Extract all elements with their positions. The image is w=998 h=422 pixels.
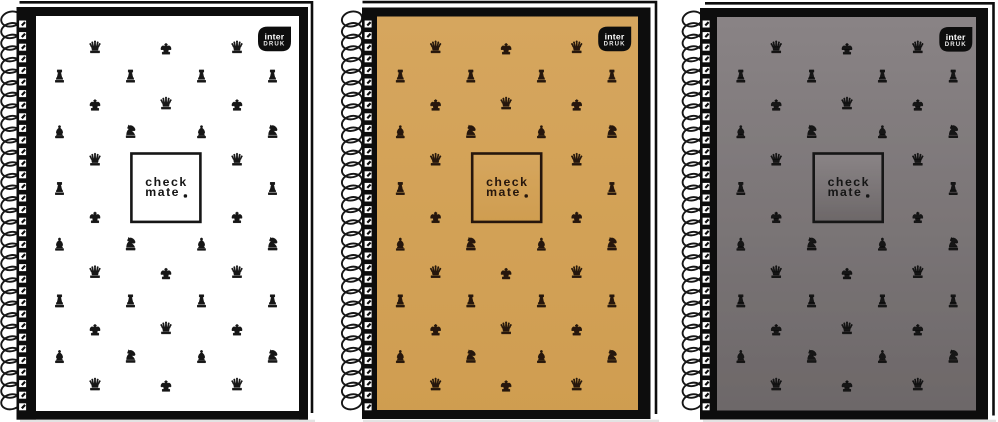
svg-text:mate: mate — [828, 185, 863, 199]
svg-text:mate: mate — [486, 185, 521, 199]
svg-text:mate: mate — [145, 185, 180, 199]
